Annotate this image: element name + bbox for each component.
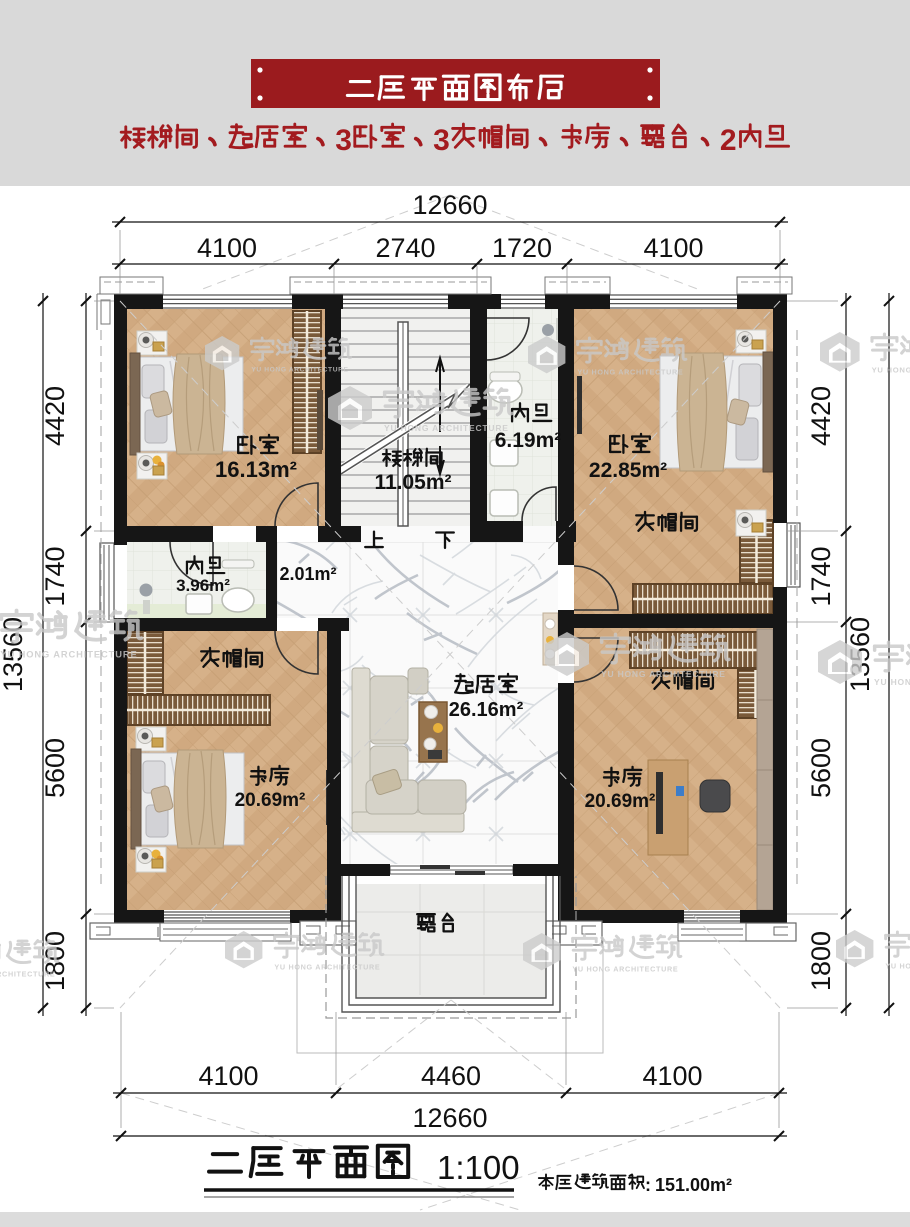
svg-text:3: 3 <box>335 124 352 157</box>
svg-text:YU HONG ARCHITECTURE: YU HONG ARCHITECTURE <box>601 669 726 679</box>
svg-text:4100: 4100 <box>643 233 703 263</box>
svg-text:5600: 5600 <box>806 738 836 798</box>
svg-text:1720: 1720 <box>492 233 552 263</box>
svg-text:16.13m²: 16.13m² <box>215 457 297 482</box>
svg-text:4460: 4460 <box>421 1061 481 1091</box>
svg-text::: : <box>645 1175 651 1195</box>
svg-text:26.16m²: 26.16m² <box>449 699 524 721</box>
svg-text:4100: 4100 <box>198 1061 258 1091</box>
svg-text:YU HONG ARCHITECTURE: YU HONG ARCHITECTURE <box>874 677 910 687</box>
svg-text:YU HONG ARCHITECTURE: YU HONG ARCHITECTURE <box>577 367 683 376</box>
svg-text:22.85m²: 22.85m² <box>589 459 667 482</box>
svg-text:YU HONG ARCHITECTURE: YU HONG ARCHITECTURE <box>0 969 55 978</box>
svg-text:1740: 1740 <box>40 546 70 606</box>
svg-text:1:100: 1:100 <box>437 1149 520 1186</box>
svg-text:4420: 4420 <box>40 386 70 446</box>
svg-text:2: 2 <box>720 124 737 157</box>
svg-text:12660: 12660 <box>412 190 487 220</box>
svg-text:1800: 1800 <box>806 931 836 991</box>
svg-text:YU HONG ARCHITECTURE: YU HONG ARCHITECTURE <box>872 366 910 375</box>
svg-text:3.96m²: 3.96m² <box>176 576 230 595</box>
svg-text:2.01m²: 2.01m² <box>279 564 336 584</box>
svg-text:YU HONG ARCHITECTURE: YU HONG ARCHITECTURE <box>251 366 348 373</box>
svg-text:YU HONG ARCHITECTURE: YU HONG ARCHITECTURE <box>0 649 137 659</box>
svg-text:YU HONG ARCHITECTURE: YU HONG ARCHITECTURE <box>274 962 380 971</box>
svg-text:4100: 4100 <box>197 233 257 263</box>
svg-text:12660: 12660 <box>412 1103 487 1133</box>
svg-text:20.69m²: 20.69m² <box>585 791 656 812</box>
svg-text:1740: 1740 <box>806 546 836 606</box>
svg-text:4100: 4100 <box>642 1061 702 1091</box>
svg-text:YU HONG ARCHITECTURE: YU HONG ARCHITECTURE <box>885 961 910 970</box>
svg-text:2740: 2740 <box>375 233 435 263</box>
svg-text:YU HONG ARCHITECTURE: YU HONG ARCHITECTURE <box>572 964 678 973</box>
svg-text:YU HONG ARCHITECTURE: YU HONG ARCHITECTURE <box>384 423 509 433</box>
svg-text:3: 3 <box>433 124 450 157</box>
svg-text:4420: 4420 <box>806 386 836 446</box>
svg-text:151.00m²: 151.00m² <box>655 1175 732 1195</box>
svg-text:11.05m²: 11.05m² <box>374 471 451 494</box>
svg-text:20.69m²: 20.69m² <box>235 790 306 811</box>
svg-text:5600: 5600 <box>40 738 70 798</box>
